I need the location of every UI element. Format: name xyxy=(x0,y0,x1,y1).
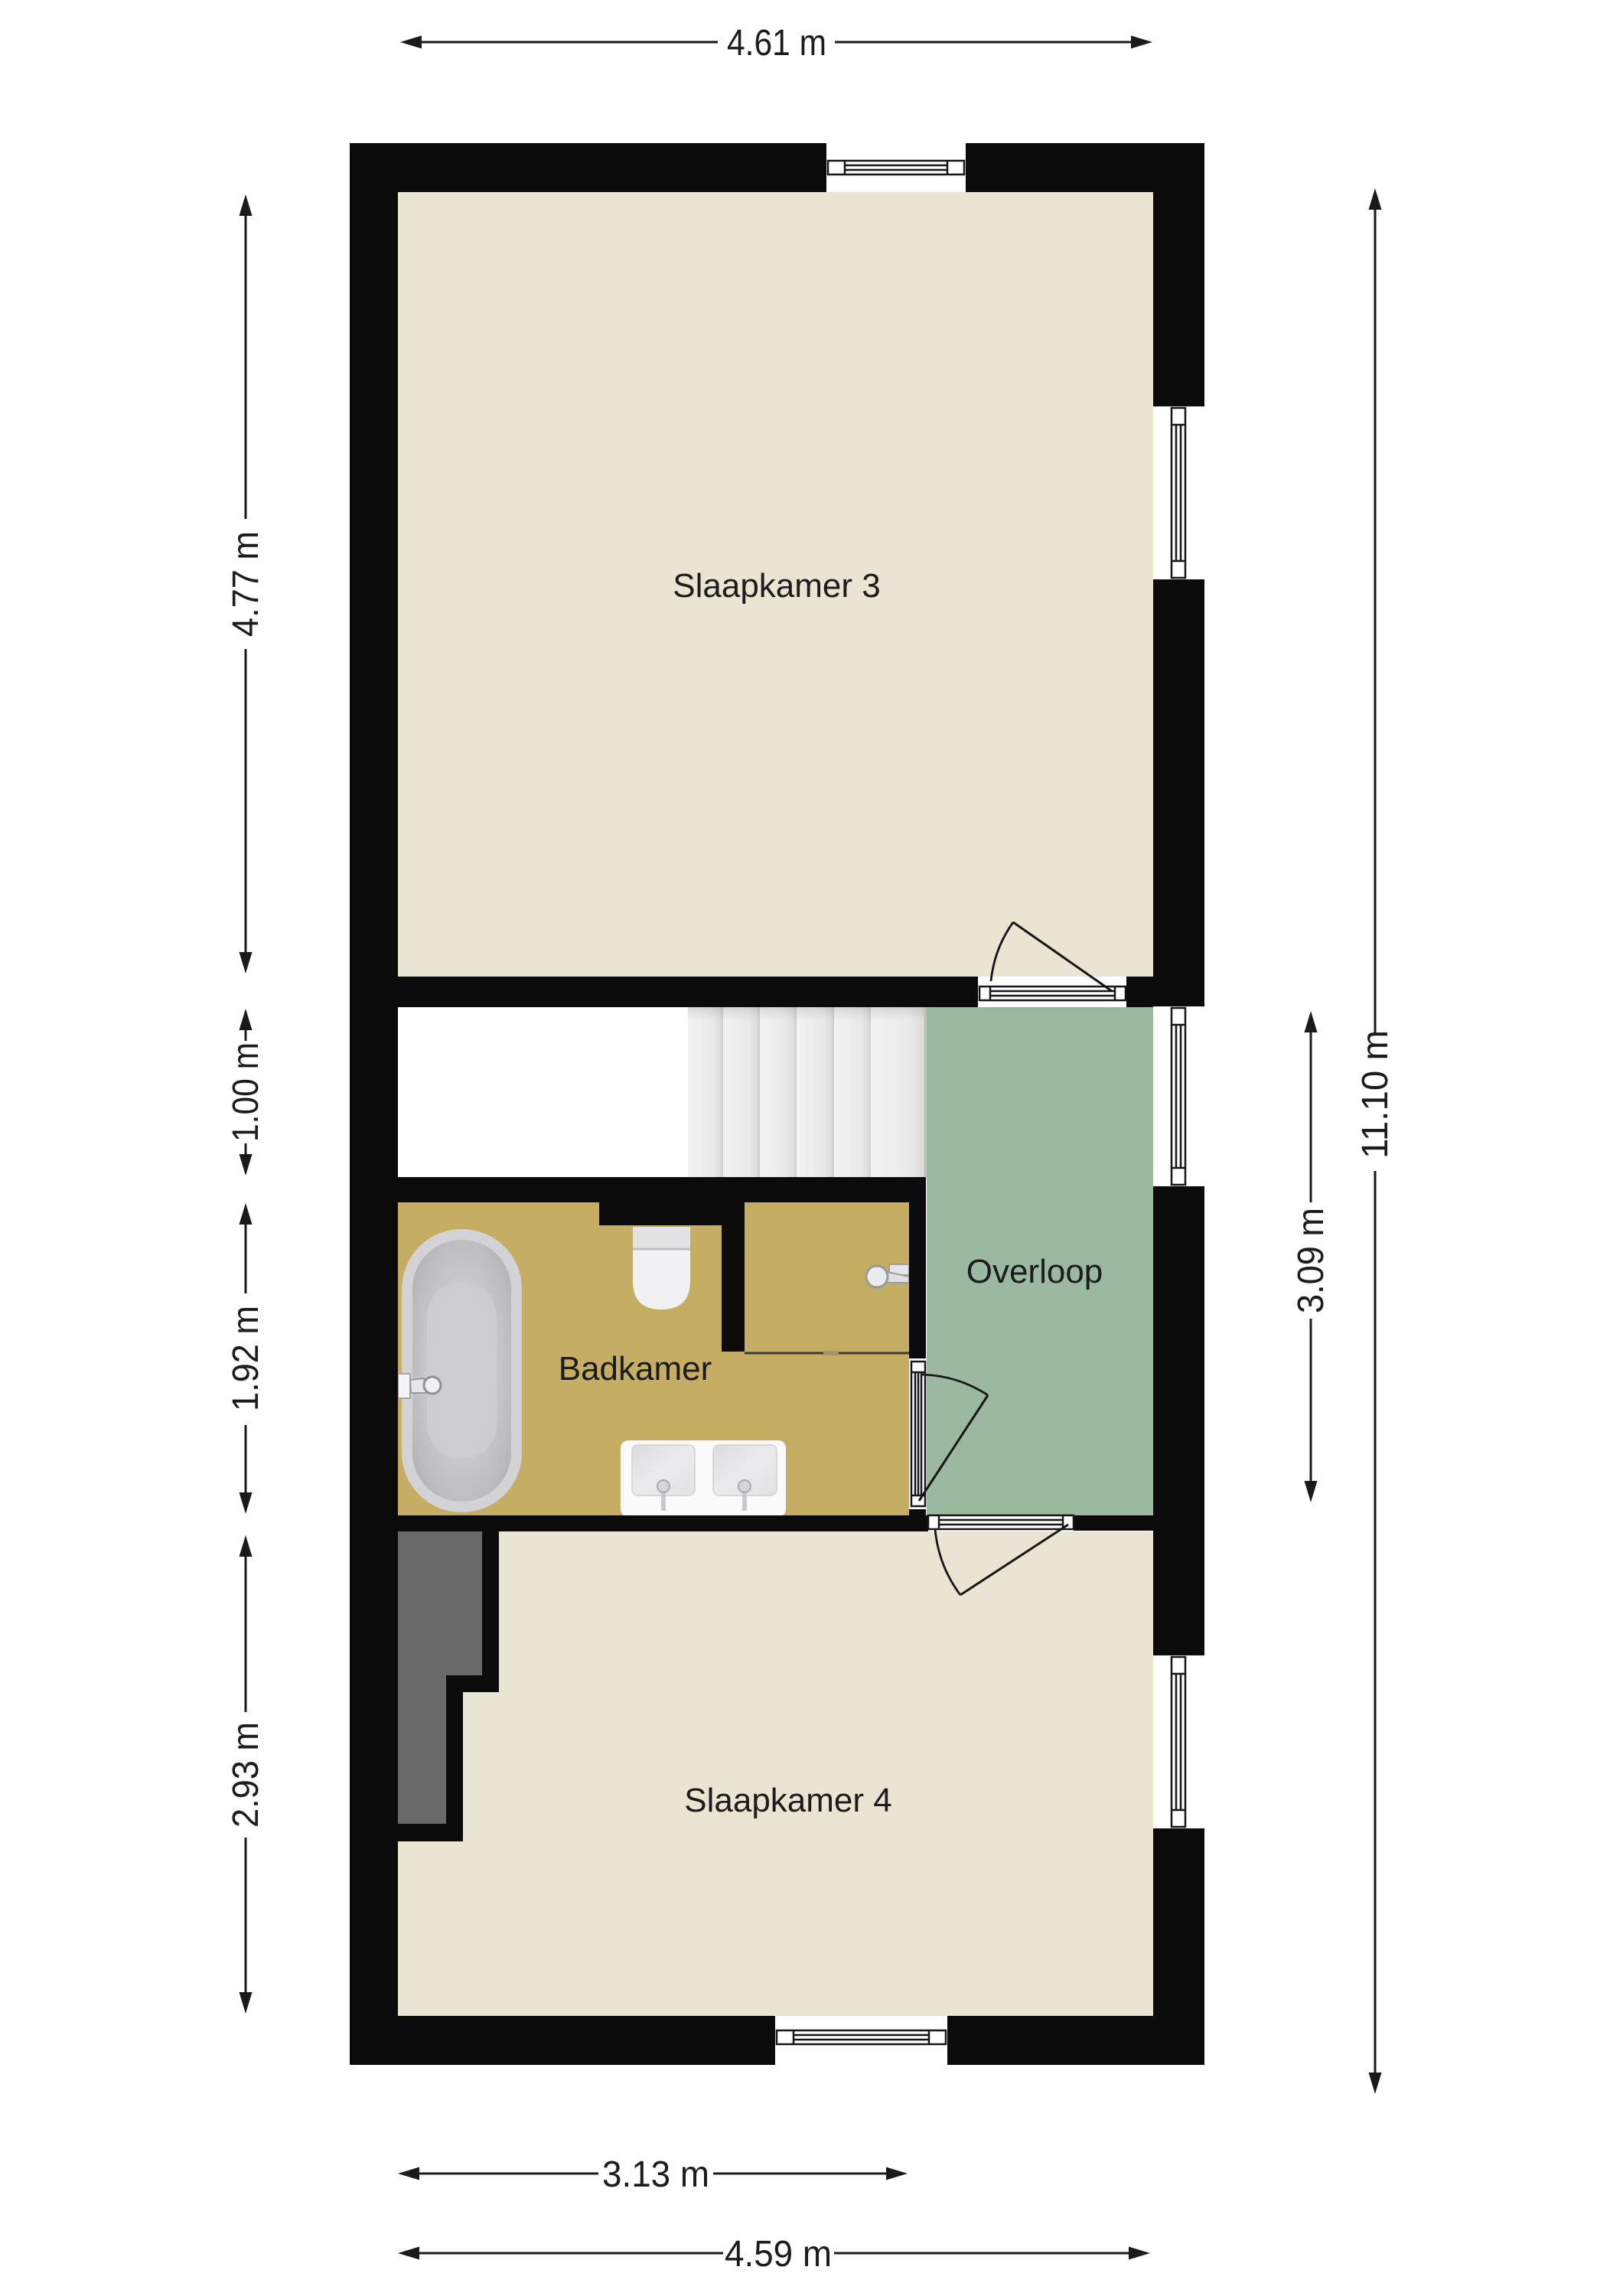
svg-text:4.59 m: 4.59 m xyxy=(725,2234,832,2275)
svg-text:1.92 m: 1.92 m xyxy=(226,1306,266,1411)
svg-text:2.93 m: 2.93 m xyxy=(226,1722,266,1828)
svg-text:3.09 m: 3.09 m xyxy=(1291,1208,1331,1313)
svg-text:Slaapkamer 3: Slaapkamer 3 xyxy=(673,567,880,605)
svg-text:Overloop: Overloop xyxy=(966,1253,1103,1290)
svg-text:4.77 m: 4.77 m xyxy=(226,531,266,637)
svg-text:1.00 m: 1.00 m xyxy=(226,1042,266,1142)
svg-text:4.61 m: 4.61 m xyxy=(727,23,826,64)
svg-text:11.10 m: 11.10 m xyxy=(1355,1030,1396,1159)
svg-text:3.13 m: 3.13 m xyxy=(602,2154,709,2195)
svg-text:Slaapkamer 4: Slaapkamer 4 xyxy=(684,1782,891,1819)
svg-text:Badkamer: Badkamer xyxy=(559,1350,712,1388)
